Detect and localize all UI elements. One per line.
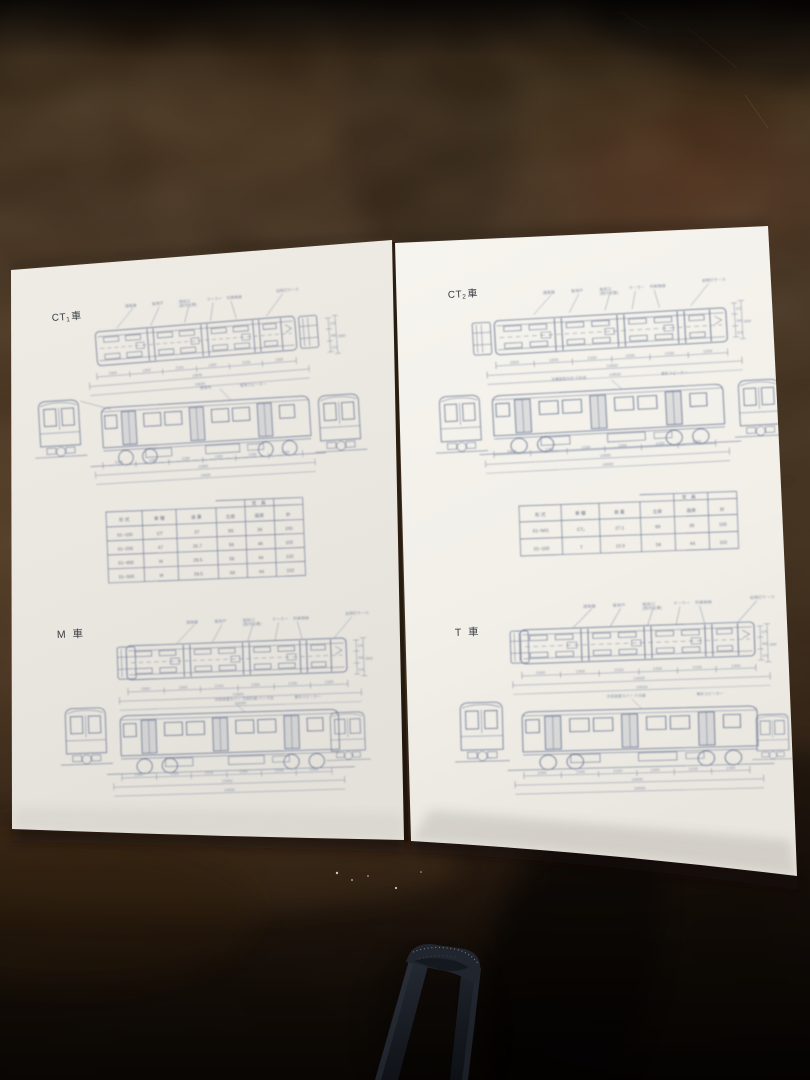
svg-text:冷房装置カバー 六冷器: 冷房装置カバー 六冷器 [607, 693, 646, 699]
svg-text:01~500: 01~500 [119, 574, 135, 580]
svg-text:44: 44 [258, 555, 264, 560]
svg-text:29.5: 29.5 [194, 571, 204, 576]
svg-text:102: 102 [286, 554, 294, 559]
svg-text:22.0: 22.0 [616, 543, 626, 548]
svg-text:102: 102 [286, 568, 294, 573]
svg-text:36: 36 [689, 523, 695, 528]
svg-text:58: 58 [230, 570, 236, 575]
svg-text:01~N01: 01~N01 [533, 528, 550, 534]
svg-text:T: T [580, 545, 583, 550]
svg-text:58: 58 [656, 542, 662, 547]
svg-text:47: 47 [158, 545, 164, 550]
svg-text:車外スピーカー: 車外スピーカー [294, 694, 321, 700]
svg-text:T 車: T 車 [455, 625, 481, 639]
svg-text:68: 68 [228, 528, 234, 533]
svg-text:CT₂: CT₂ [577, 527, 585, 532]
svg-text:車外スピーカー: 車外スピーカー [697, 691, 724, 697]
svg-text:58: 58 [229, 556, 235, 561]
svg-text:M: M [159, 573, 163, 578]
svg-text:44: 44 [690, 541, 696, 546]
svg-text:100: 100 [285, 526, 293, 531]
svg-text:100: 100 [719, 522, 727, 527]
svg-text:36: 36 [257, 527, 263, 532]
svg-text:102: 102 [285, 540, 293, 545]
svg-text:102: 102 [719, 540, 727, 545]
svg-text:01~200: 01~200 [118, 546, 134, 552]
svg-text:58: 58 [229, 542, 235, 547]
svg-text:CT: CT [157, 531, 164, 536]
svg-text:01~400: 01~400 [118, 560, 134, 566]
svg-text:屋根布: 屋根布 [200, 384, 212, 390]
svg-text:29.5: 29.5 [193, 557, 203, 562]
svg-text:27: 27 [194, 529, 200, 534]
svg-text:M 車: M 車 [57, 627, 86, 641]
svg-text:27.1: 27.1 [615, 525, 625, 530]
svg-text:44: 44 [259, 569, 265, 574]
svg-text:M: M [159, 559, 163, 564]
svg-text:01~100: 01~100 [117, 532, 133, 538]
svg-text:25.7: 25.7 [193, 543, 203, 548]
svg-text:01~100: 01~100 [534, 546, 550, 552]
svg-text:68: 68 [655, 524, 661, 529]
svg-text:48: 48 [258, 541, 264, 546]
